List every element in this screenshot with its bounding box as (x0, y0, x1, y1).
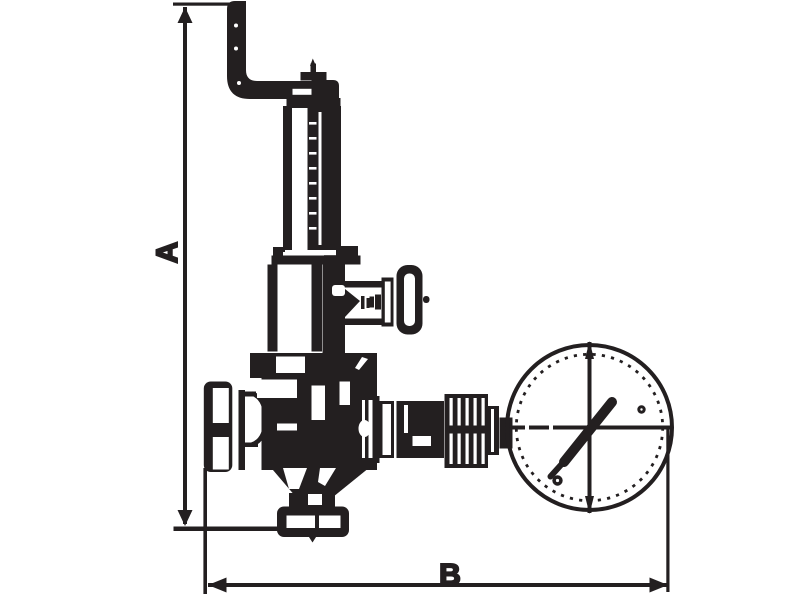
svg-text:A: A (151, 242, 184, 264)
svg-text:B: B (439, 559, 461, 592)
